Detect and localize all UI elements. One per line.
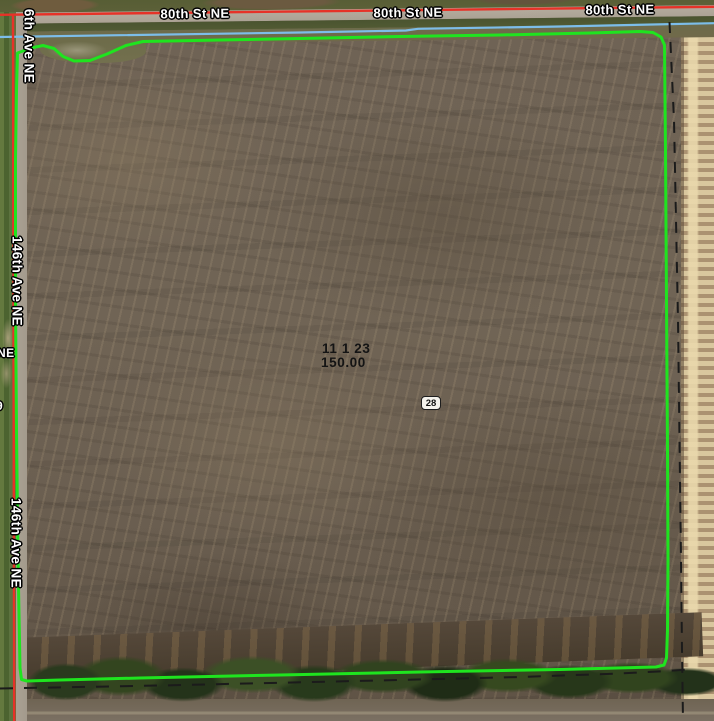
aerial-parcel-map[interactable]: 80th St NE 80th St NE 80th St NE 6th Ave… [0,0,714,721]
road-label-146th-ave-ne-mid: 146th Ave NE [10,236,25,326]
utility-line [0,23,714,37]
edge-label-ne: NE [0,346,14,360]
road-label-80th-st-ne-3: 80th St NE [585,2,654,18]
section-marker-label: 28 [426,398,437,409]
section-line-east [670,22,684,721]
road-label-80th-st-ne-1: 80th St NE [160,6,229,22]
road-centerline-west [13,16,14,721]
road-label-146th-ave-ne-top: 6th Ave NE [22,9,37,83]
parcel-acres-label: 150.00 [321,356,366,371]
road-label-146th-ave-ne-bottom: 146th Ave NE [9,498,24,588]
road-label-80th-st-ne-2: 80th St NE [373,5,442,21]
section-marker-28[interactable]: 28 [421,396,441,410]
edge-label-9: 9 [0,399,3,413]
